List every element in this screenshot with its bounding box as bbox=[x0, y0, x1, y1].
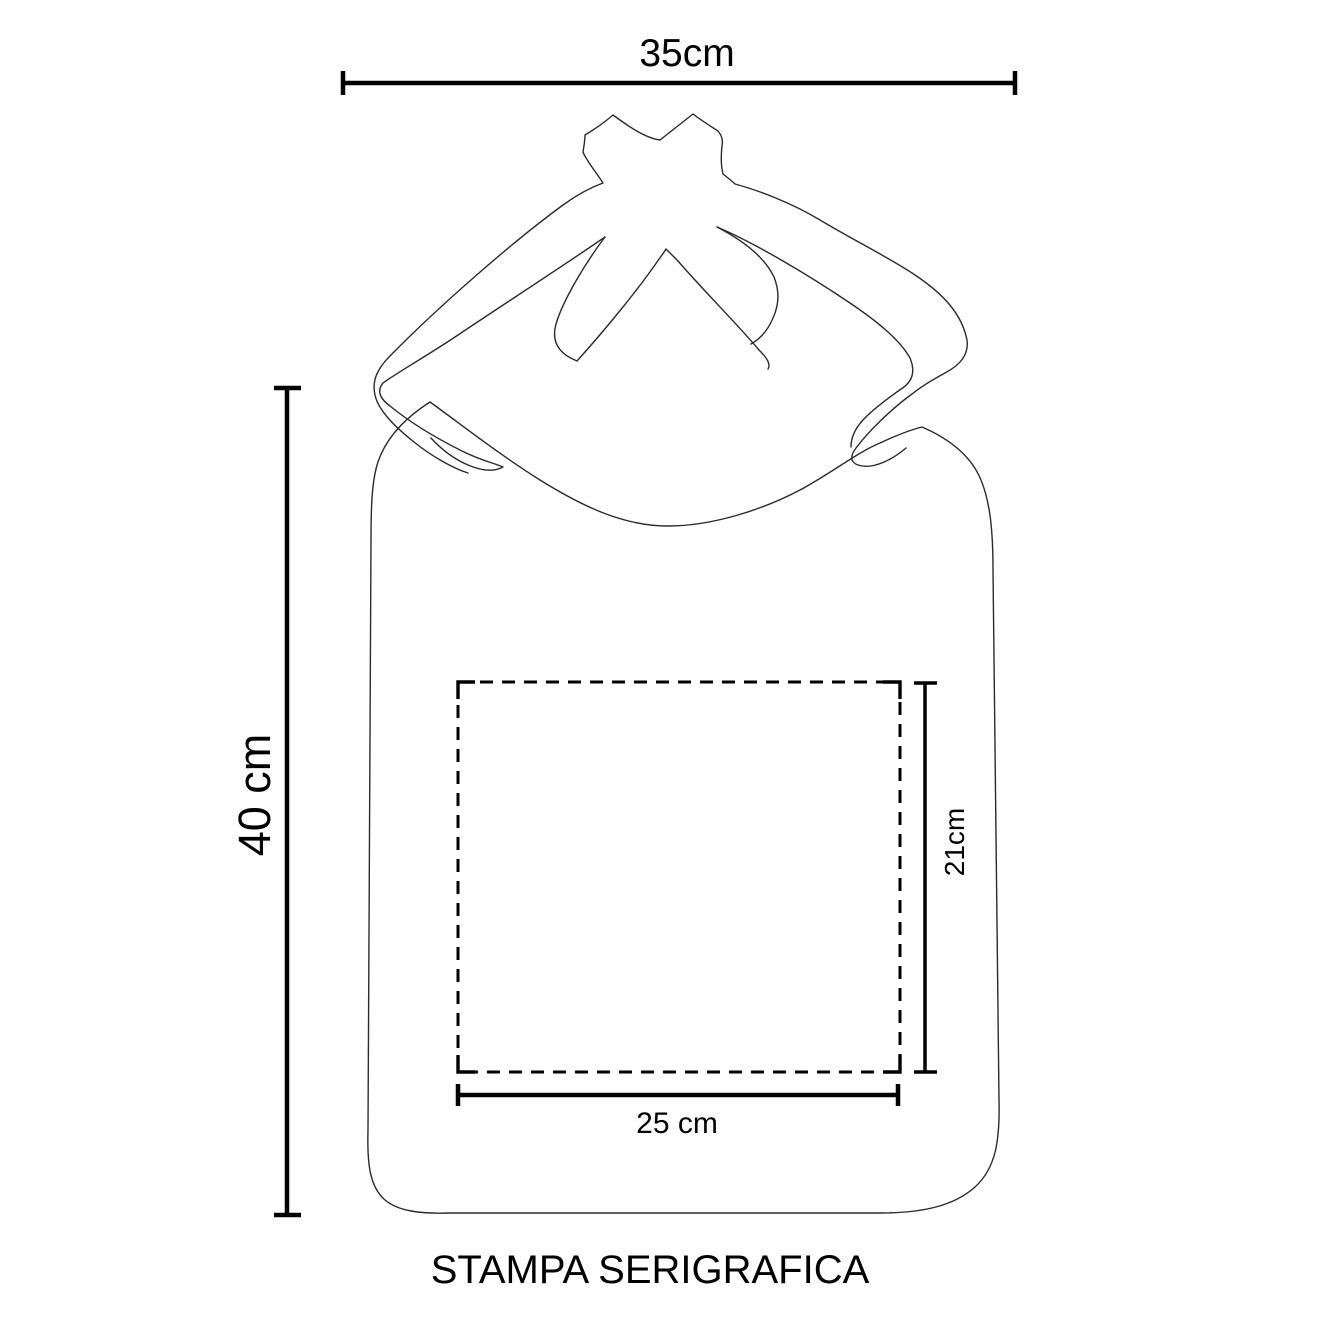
width-dimension-label: 35cm bbox=[639, 32, 734, 75]
print-area-corner-bl bbox=[458, 1055, 475, 1072]
handle-inner-right bbox=[717, 227, 913, 447]
bag-diagram-canvas: 35cm 40 cm 21cm 25 cm STAMPA SERIGRAFICA bbox=[0, 0, 1333, 1333]
caption: STAMPA SERIGRAFICA bbox=[431, 1248, 870, 1292]
print-width-label: 25 cm bbox=[636, 1107, 718, 1140]
print-height-label: 21cm bbox=[939, 808, 970, 876]
width-dimension: 35cm bbox=[343, 32, 1015, 95]
bag-body-outline bbox=[368, 402, 999, 1213]
print-area-rect bbox=[458, 682, 900, 1072]
knot-fold-left bbox=[555, 237, 769, 369]
height-dimension: 40 cm bbox=[229, 388, 301, 1215]
print-area-corner-tl bbox=[458, 682, 475, 699]
print-area-corner-br bbox=[883, 1055, 900, 1072]
bag-artwork bbox=[368, 114, 999, 1213]
print-area bbox=[458, 682, 900, 1072]
technical-drawing-page: 35cm 40 cm 21cm 25 cm STAMPA SERIGRAFICA bbox=[0, 0, 1333, 1333]
knot-fold-right bbox=[717, 227, 778, 344]
print-height-dimension: 21cm bbox=[914, 683, 970, 1072]
tied-handles-outline bbox=[374, 114, 967, 473]
print-area-corner-tr bbox=[883, 682, 900, 699]
handle-inner-left bbox=[380, 237, 605, 470]
height-dimension-label: 40 cm bbox=[229, 734, 280, 857]
print-width-dimension: 25 cm bbox=[458, 1084, 898, 1140]
